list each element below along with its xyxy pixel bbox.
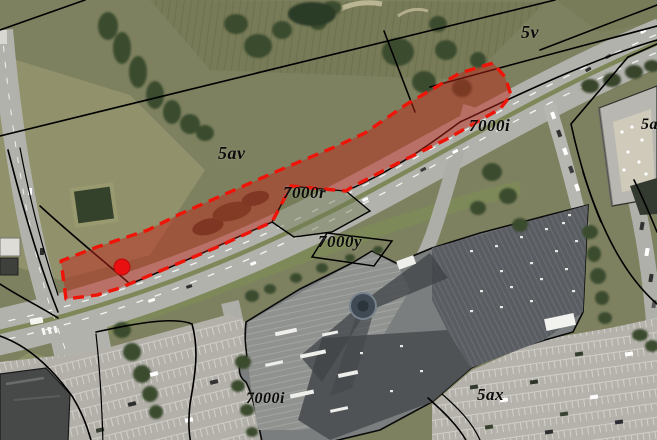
map-viewport[interactable]: 5v 5av 7000i 7000r 7000y 7000i 5ax 5a [0,0,657,440]
hedge-square [69,182,118,228]
mall-dome [350,293,376,319]
location-marker-dot[interactable] [114,259,130,275]
aerial-basemap [0,0,657,440]
